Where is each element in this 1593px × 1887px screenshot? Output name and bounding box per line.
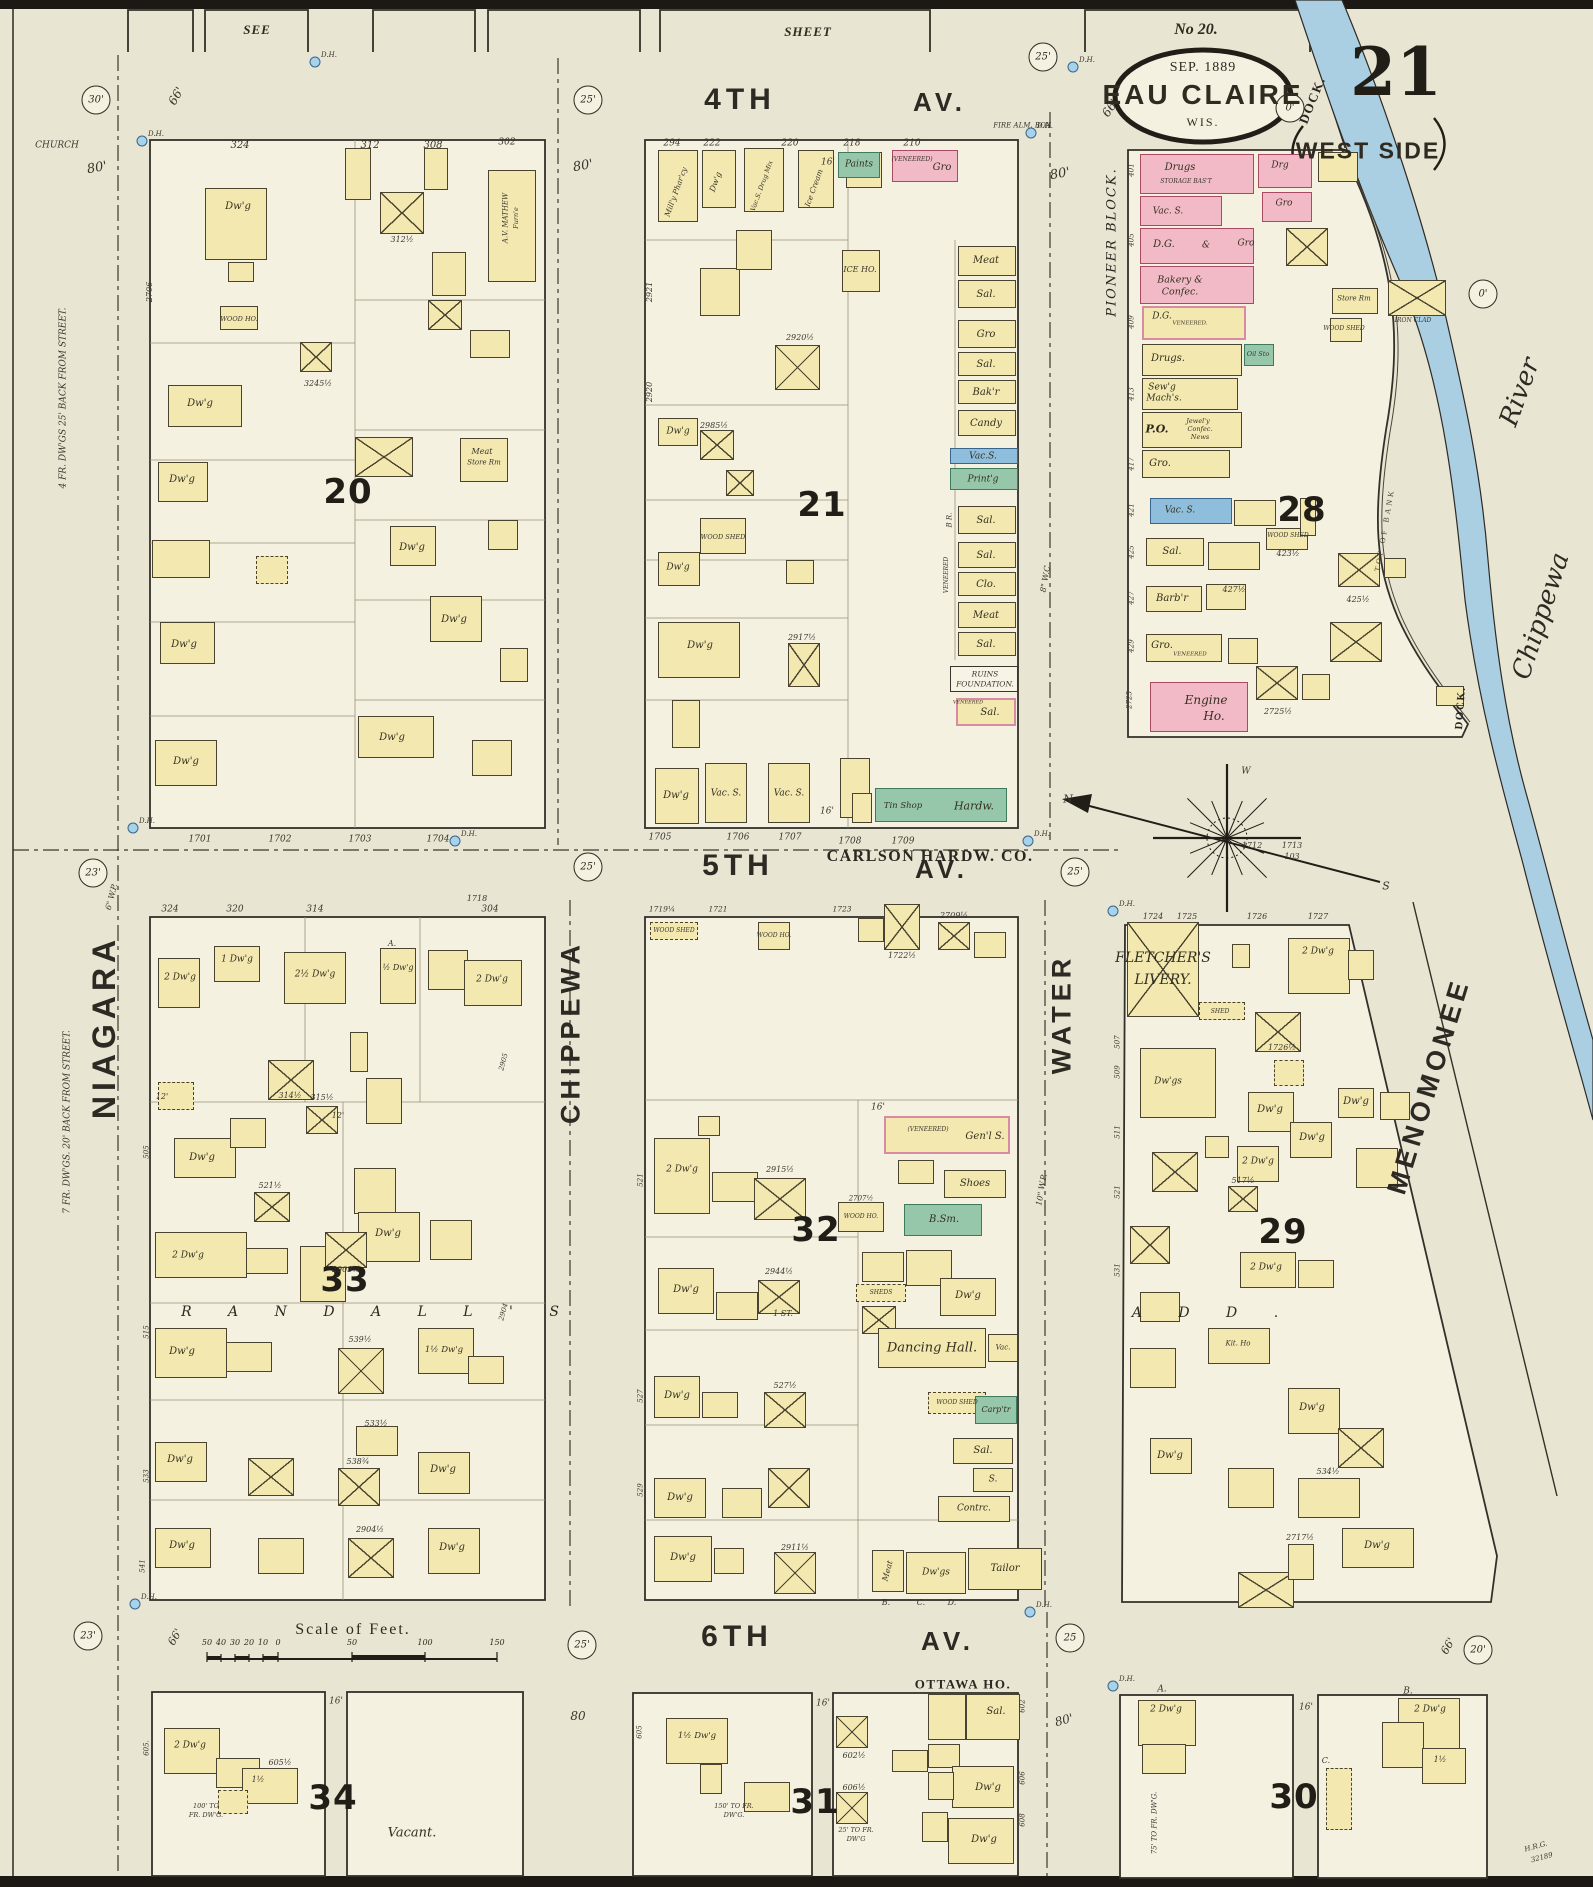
map-label: 509 (1115, 1065, 1122, 1078)
map-label: ICE HO. (843, 266, 876, 274)
map-label: 2 Dw'g (476, 976, 508, 985)
building-footprint (898, 1160, 934, 1184)
building-footprint (1288, 1544, 1314, 1580)
map-label: 2 Dw'g (1242, 1158, 1274, 1167)
block-outlines (150, 140, 1497, 1878)
map-label: Tailor (990, 1564, 1019, 1574)
map-label: 421 (1129, 503, 1136, 516)
map-label: A. (388, 940, 396, 948)
distance-marker: 0' (1469, 280, 1498, 309)
map-label: 4 FR. DW'GS 25' BACK FROM STREET. (60, 308, 69, 489)
map-label: 2 Dw'g (174, 1742, 206, 1751)
map-label: 2 Dw'g (172, 1252, 204, 1261)
distance-marker: 25' (574, 853, 603, 882)
map-label: Jewel'y (1186, 418, 1209, 425)
map-label: 314½ (278, 1092, 301, 1100)
building-footprint (1338, 1428, 1384, 1468)
building-footprint (205, 188, 267, 260)
building-footprint (1256, 666, 1298, 700)
title-state: WIS. (1187, 116, 1220, 128)
map-label: 1 ST. (773, 1310, 793, 1318)
map-label: 20 (323, 475, 372, 509)
map-label: 312 (360, 141, 379, 151)
map-label: 12' (156, 1093, 168, 1101)
map-label: RUINS (972, 670, 999, 678)
distance-marker: 23' (74, 1622, 103, 1651)
building-footprint (768, 1468, 810, 1508)
map-label: (VENEERED) (891, 157, 932, 163)
map-label: Dw'g (664, 1391, 690, 1401)
building-footprint (884, 904, 920, 950)
building-footprint (786, 560, 814, 584)
map-label: 2 Dw'g (1302, 948, 1334, 957)
building-footprint (974, 932, 1006, 958)
building-footprint (774, 1552, 816, 1594)
map-label: Gro (977, 330, 996, 340)
map-label: 16' (820, 808, 834, 817)
map-label: 531 (1115, 1263, 1122, 1276)
map-label: 294 (663, 140, 680, 149)
map-label: 429 (1129, 639, 1136, 652)
map-label: LIVERY. (1134, 973, 1191, 987)
building-footprint (338, 1348, 384, 1394)
map-label: Dw'g (673, 1285, 699, 1295)
map-label: S (1382, 881, 1390, 892)
map-label: 16' (816, 1700, 830, 1709)
map-label: 1724 (1143, 913, 1163, 921)
map-label: 312½ (390, 236, 413, 244)
map-label: 517½ (1231, 1177, 1254, 1185)
map-label: 80 (570, 1710, 585, 1722)
map-label: Vac. S. (711, 790, 742, 799)
building-footprint (892, 1750, 928, 1772)
map-label: 539½ (348, 1336, 371, 1344)
building-footprint (714, 1548, 744, 1574)
map-label: Sal. (973, 1446, 992, 1456)
map-label: Vac. (996, 1345, 1011, 1352)
hydrant-marker (1068, 62, 1079, 73)
map-label: Confec. (1162, 287, 1199, 297)
sheet-number: 21 (1350, 39, 1442, 105)
building-footprint (702, 1392, 738, 1418)
scale-tick-label: 100 (417, 1638, 432, 1647)
map-label: 6TH (701, 1622, 773, 1652)
map-label: 1722½ (888, 952, 916, 960)
map-label: 605½ (268, 1759, 291, 1767)
building-footprint (672, 700, 700, 748)
map-label: 7 FR. DW'GS. 20' BACK FROM STREET. (64, 1030, 73, 1214)
map-label: Sal. (976, 290, 995, 300)
map-label: A D D . (1132, 1306, 1294, 1320)
map-label: Dw'g (439, 1543, 465, 1553)
hydrant-marker (1108, 1681, 1119, 1692)
map-label: 315½ (310, 1094, 333, 1102)
map-label: 1726 (1247, 913, 1267, 921)
building-footprint (928, 1694, 966, 1740)
map-label: 5TH (702, 851, 774, 881)
top-bar (0, 0, 1593, 9)
map-label: VENEERED (944, 557, 950, 593)
map-label: WOOD SHED (936, 1400, 977, 1406)
map-label: 16' (329, 1698, 343, 1707)
scale-tick-label: 50 (202, 1638, 212, 1647)
map-label: 314 (306, 906, 323, 915)
map-label: FR. DW'G. (189, 1812, 223, 1819)
map-label: 80' (86, 160, 108, 176)
building-footprint (355, 437, 413, 477)
map-label: 608 (1020, 1813, 1027, 1826)
map-label: Dw'gs (922, 1569, 950, 1578)
map-label: Mach's. (1146, 395, 1181, 404)
map-label: Meat (973, 611, 999, 621)
map-label: 533 (144, 1469, 151, 1482)
map-label: Dw'g (379, 733, 405, 743)
building-footprint (836, 1716, 868, 1748)
map-label: 1725 (1177, 913, 1197, 921)
map-label: 16' (821, 159, 835, 168)
map-label: 1½ Dw'g (678, 1732, 716, 1741)
distance-marker: 23' (79, 859, 108, 888)
map-label: 25' TO FR. (838, 1827, 873, 1834)
map-label: Vac. S. (774, 790, 805, 799)
map-label: 2911½ (781, 1544, 809, 1552)
distance-marker: 30' (82, 86, 111, 115)
building-footprint (1228, 1468, 1274, 1508)
map-label: 34 (308, 1781, 357, 1815)
map-label: Paints (845, 161, 873, 170)
map-label: Dw'g (670, 1553, 696, 1563)
map-label: 2½ Dw'g (295, 971, 335, 980)
map-label: 2707½ (849, 1196, 874, 1203)
scale-bar (207, 1652, 497, 1662)
distance-marker: 25' (568, 1631, 597, 1660)
map-label: Drg (1271, 162, 1288, 171)
map-label: P.O. (1145, 424, 1168, 435)
scale-tick-label: 40 (216, 1638, 226, 1647)
map-label: DW'G. (724, 1812, 745, 1819)
building-footprint (1232, 944, 1250, 968)
building-footprint (928, 1772, 954, 1800)
building-footprint (1274, 1060, 1304, 1086)
hydrant-label: D.H. (139, 817, 155, 825)
map-label: 2915½ (766, 1166, 794, 1174)
building-footprint (1286, 228, 1328, 266)
building-footprint (852, 793, 872, 823)
map-label: 2725 (1127, 691, 1134, 709)
map-label: Dw'g (1343, 1097, 1369, 1107)
building-footprint (928, 1744, 960, 1768)
building-footprint (1208, 542, 1260, 570)
map-label: 2717½ (1286, 1534, 1314, 1542)
map-label: 1718 (467, 895, 487, 903)
map-label: C. (1322, 1757, 1330, 1765)
map-label: 427½ (1222, 586, 1245, 594)
building-footprint (256, 556, 288, 584)
map-label: 222 (703, 140, 720, 149)
hydrant-marker (1023, 836, 1034, 847)
building-footprint (1384, 558, 1406, 578)
map-label: 527½ (773, 1382, 796, 1390)
map-label: Gro. (1149, 459, 1171, 469)
map-label: Dw'g (441, 615, 467, 625)
map-label: SHED (1211, 1009, 1230, 1015)
map-label: 220 (781, 140, 798, 149)
building-footprint (1228, 1186, 1258, 1212)
map-label: Gro (1276, 200, 1293, 209)
map-label: Dw'g (1299, 1403, 1325, 1413)
building-footprint (862, 1252, 904, 1282)
map-label: 21 (797, 488, 846, 522)
map-label: Clo. (976, 580, 996, 590)
building-footprint (1140, 154, 1254, 194)
map-label: 30 (1269, 1780, 1318, 1814)
building-footprint (1298, 1478, 1360, 1518)
hydrant-label: D.H. (1037, 122, 1053, 130)
map-label: 425 (1129, 545, 1136, 558)
map-label: Vac.S. (969, 453, 997, 462)
map-label: Dw'g (1299, 1133, 1325, 1143)
map-label: Bakery & (1157, 275, 1202, 285)
map-label: Meat (472, 448, 493, 456)
map-label: VENEERED (953, 701, 983, 706)
map-label: 2 Dw'g (1150, 1706, 1182, 1715)
map-label: D.G. (1152, 313, 1172, 322)
building-footprint (726, 470, 754, 496)
map-label: 529 (638, 1483, 645, 1496)
building-footprint (1150, 682, 1248, 732)
hydrant-label: D.H. (321, 51, 337, 59)
map-label: Dw'g (169, 1541, 195, 1551)
map-label: 1702 (269, 836, 292, 845)
map-label: 2944½ (765, 1268, 793, 1276)
map-label: 521 (1115, 1185, 1122, 1198)
map-label: 210 (903, 140, 920, 149)
map-label: NIAGARA (88, 935, 120, 1119)
map-label: WOOD SHED (1267, 533, 1308, 539)
map-label: Dw'g (173, 757, 199, 767)
map-label: Drugs. (1151, 354, 1185, 364)
map-label: D.G. (1153, 240, 1175, 250)
map-label: Store Rm (467, 460, 500, 467)
map-label: 1704 (427, 836, 450, 845)
hydrant-marker (1108, 906, 1119, 917)
distance-marker: 25 (1056, 1624, 1085, 1653)
map-label: Barb'r (1156, 594, 1188, 604)
map-label: VENEERED (1173, 652, 1206, 658)
hydrant-marker (137, 136, 148, 147)
title-date: SEP. 1889 (1170, 61, 1237, 75)
side-label: WEST SIDE (1296, 140, 1441, 163)
map-label: Dw'g (167, 1455, 193, 1465)
hydrant-label: D.H. (1036, 1601, 1052, 1609)
hydrant-label: D.H. (1079, 56, 1095, 64)
map-label: 4TH (704, 85, 776, 115)
map-label: (VENEERED) (907, 1127, 948, 1133)
map-label: 2725½ (1264, 708, 1292, 716)
scale-tick-label: 50 (347, 1638, 357, 1647)
building-footprint (152, 540, 210, 578)
adjoining-sheet-number: No 20. (1174, 21, 1218, 39)
hydrant-marker (130, 1599, 141, 1610)
map-label: Dw'g (187, 399, 213, 409)
building-footprint (1130, 1348, 1176, 1388)
map-label: Tin Shop (884, 802, 922, 811)
map-label: Sal. (976, 640, 995, 650)
building-footprint (654, 1138, 710, 1214)
map-label: ½ Dw'g (383, 964, 414, 972)
map-label: B.Sm. (929, 1215, 959, 1225)
map-label: 401 (1129, 163, 1136, 176)
map-label: Carp'tr (981, 1406, 1010, 1414)
map-label: 541 (140, 1559, 147, 1572)
building-footprint (775, 345, 820, 390)
map-label: B R. (947, 513, 954, 528)
building-footprint (700, 1764, 722, 1794)
map-label: Print'g (968, 476, 999, 485)
building-footprint (700, 268, 740, 316)
scale-title: Scale of Feet. (295, 1621, 411, 1639)
building-footprint (1422, 1748, 1466, 1784)
map-label: A. (1157, 1686, 1166, 1695)
map-label: 2 Dw'g (164, 974, 196, 983)
map-label: 2904½ (356, 1526, 384, 1534)
map-label: Dw'g (663, 791, 689, 801)
map-label: 606½ (842, 1784, 865, 1792)
map-label: Dw'g (1157, 1451, 1183, 1461)
map-label: Bak'r (973, 388, 1000, 398)
map-label: 308 (423, 141, 442, 151)
building-footprint (712, 1172, 758, 1202)
map-label: 100' TO (193, 1803, 219, 1810)
hydrant-label: D.H. (1119, 900, 1135, 908)
compass-rose (1062, 764, 1380, 912)
map-label: 417 (1129, 457, 1136, 470)
hydrant-marker (1025, 1607, 1036, 1618)
building-footprint (1142, 1744, 1186, 1774)
map-label: 150' TO FR. (714, 1803, 753, 1810)
map-label: Kit. Ho (1225, 1341, 1250, 1348)
map-label: 1½ (1434, 1756, 1447, 1764)
map-label: Sal. (976, 516, 995, 526)
building-footprint (938, 922, 970, 950)
map-label: 533½ (364, 1420, 387, 1428)
map-label: SHEDS (870, 1290, 893, 1296)
map-label: CHIPPEWA (558, 940, 585, 1124)
building-footprint (1130, 1226, 1170, 1264)
building-footprint (1238, 1572, 1294, 1608)
building-footprint (248, 1458, 294, 1496)
scale-tick-label: 0 (275, 1638, 280, 1647)
map-label: 1705 (649, 834, 672, 843)
map-label: Dw'g (955, 1291, 981, 1301)
map-label: OTTAWA HO. (915, 1678, 1011, 1691)
map-label: Dw'g (1257, 1105, 1283, 1115)
map-label: Shoes (960, 1179, 990, 1189)
hydrant-label: D.H. (1034, 830, 1050, 838)
map-label: Gro. (1151, 641, 1173, 651)
map-label: 534½ (1316, 1468, 1339, 1476)
map-label: 1½ (252, 1776, 265, 1784)
building-footprint (230, 1118, 266, 1148)
building-footprint (254, 1192, 290, 1222)
building-footprint (922, 1812, 948, 1842)
map-label: Meat (973, 256, 999, 266)
building-footprint (300, 342, 332, 372)
map-label: Candy (970, 419, 1002, 429)
map-label: Vacant. (388, 1827, 437, 1840)
building-footprint (666, 1718, 728, 1764)
map-label: 2985½ (700, 422, 728, 430)
map-label: B. (1403, 1688, 1412, 1697)
map-label: Vac. S. (1165, 507, 1196, 516)
map-label: 2903½ (332, 1266, 360, 1274)
map-label: Sal. (1162, 547, 1181, 557)
hydrant-marker (450, 836, 461, 847)
map-label: 32 (791, 1213, 840, 1247)
map-label: Dw'g (666, 428, 689, 437)
map-label: 423½ (1276, 550, 1299, 558)
map-label: 2920 (646, 382, 654, 402)
map-label: 218 (843, 140, 860, 149)
map-label: 511 (1115, 1125, 1122, 1138)
map-label: Sal. (976, 360, 995, 370)
building-footprint (380, 948, 416, 1004)
map-label: PIONEER BLOCK. (1106, 167, 1119, 316)
map-label: D. (948, 1599, 957, 1607)
building-footprint (242, 1768, 298, 1804)
sheet-tabs (128, 10, 1310, 52)
map-label: R A N D A L L ' S (181, 1305, 575, 1319)
building-footprint (836, 1792, 868, 1824)
map-label: 602½ (842, 1752, 865, 1760)
hydrant-label: D.H. (148, 130, 164, 138)
distance-marker: 25' (1029, 43, 1058, 72)
map-label: Contrc. (957, 1505, 991, 1514)
map-label: & (1202, 242, 1210, 251)
map-label: 1706 (727, 834, 750, 843)
building-footprint (1228, 638, 1258, 664)
hydrant-label: D.H. (1119, 1675, 1135, 1683)
map-label: 521½ (258, 1182, 281, 1190)
map-label: 1727 (1308, 913, 1328, 921)
map-label: 1709 (892, 838, 915, 847)
map-label: 1707 (779, 834, 802, 843)
map-label: 1701 (189, 836, 212, 845)
map-label: 1703 (349, 836, 372, 845)
map-label: Dw'g (171, 640, 197, 650)
map-label: Engine (1185, 694, 1228, 706)
hydrant-marker (310, 57, 321, 68)
map-label: News (1191, 434, 1209, 441)
sanborn-map-sheet: DOCK.DOCK.RiverChippewa66'66'66'66'80'80… (0, 0, 1593, 1887)
building-footprint (356, 1426, 398, 1456)
building-footprint (350, 1032, 368, 1072)
building-footprint (472, 740, 512, 776)
building-footprint (722, 1488, 762, 1518)
map-label: A.V. MATHEW (503, 193, 510, 243)
adjoining-sheet-label: SHEET (784, 24, 832, 40)
map-label: 16' (1299, 1704, 1313, 1713)
building-footprint (1326, 1768, 1352, 1830)
map-label: WOOD SHED (701, 534, 746, 541)
building-footprint (366, 1078, 402, 1124)
map-label: Dw'g (399, 543, 425, 553)
map-label: Ho. (1203, 710, 1224, 722)
map-label: 605 (637, 1725, 644, 1738)
map-label: Dw'g (225, 202, 251, 212)
building-footprint (1388, 280, 1446, 316)
map-label: 521 (638, 1173, 645, 1186)
